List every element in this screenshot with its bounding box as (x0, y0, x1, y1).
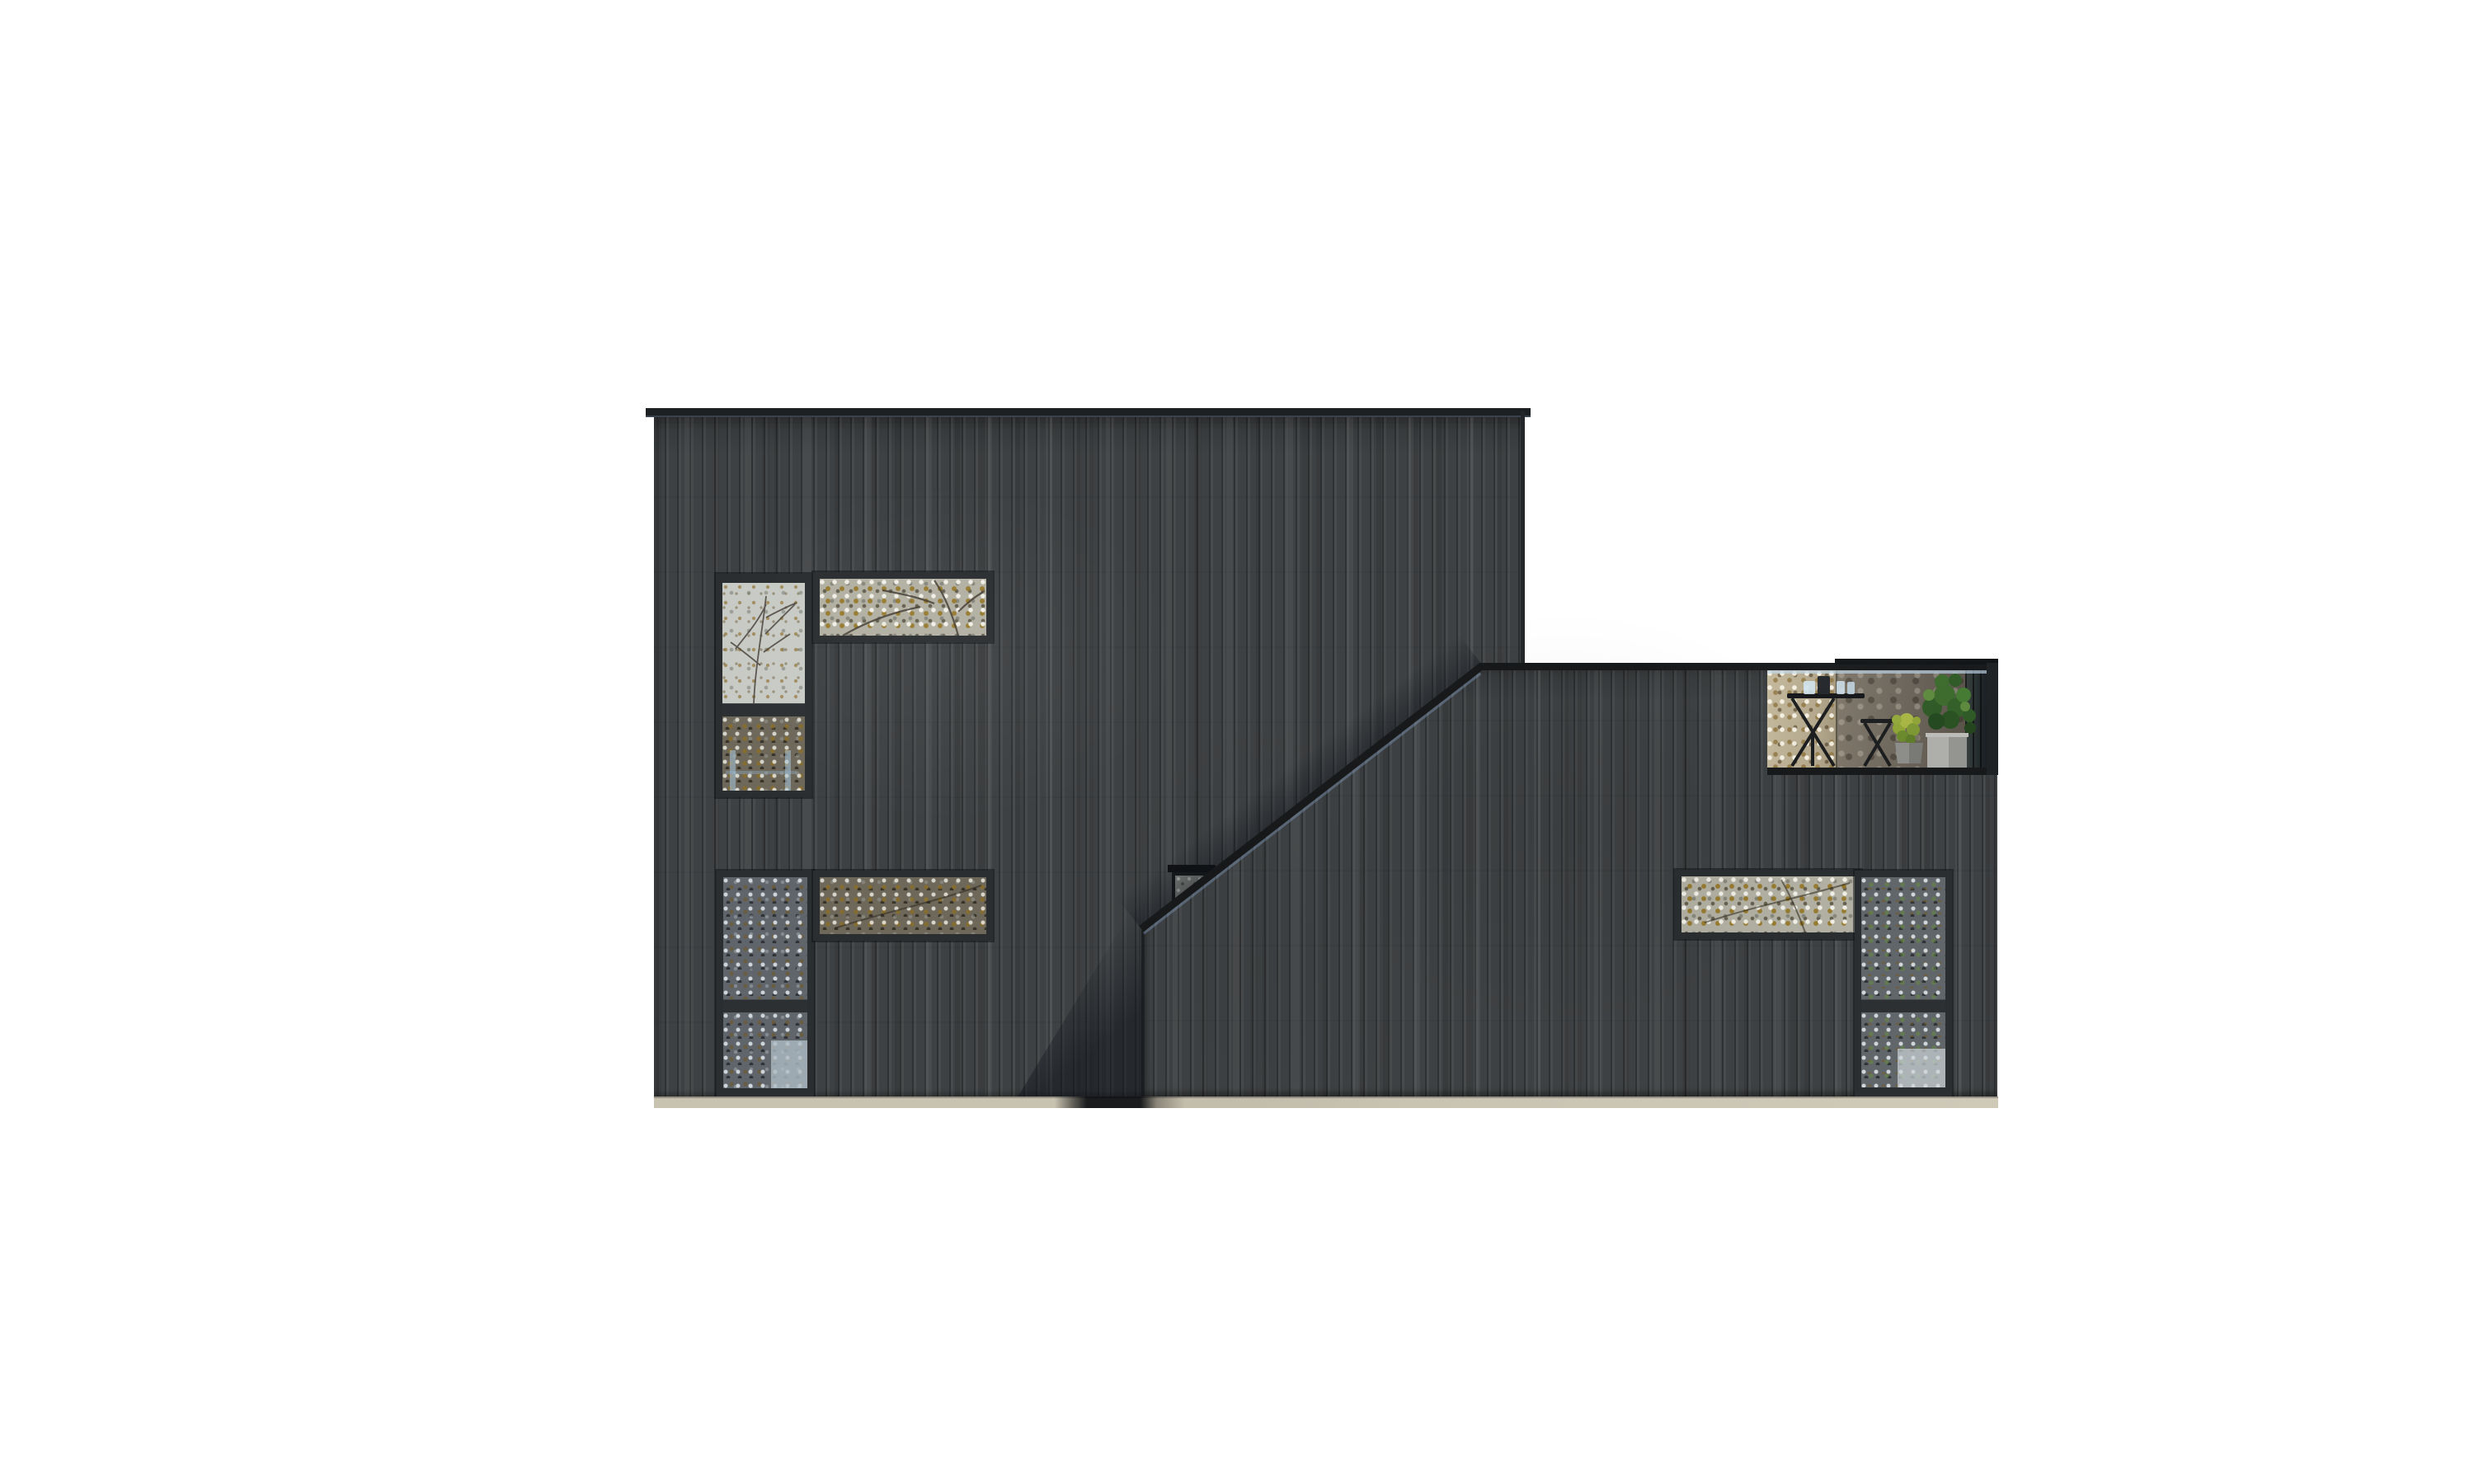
reflection-branches-icon (722, 583, 805, 703)
window-pane-foliage (1861, 1012, 1945, 1087)
window-lower-tall (717, 871, 814, 1098)
window-right-tall (1855, 871, 1952, 1097)
reflection-branches-icon (820, 877, 986, 934)
folding-stool-seat (1860, 719, 1895, 723)
window-pane-foliage (820, 579, 986, 636)
terrace-sill (1767, 768, 1997, 775)
window-pane-foliage (820, 877, 986, 934)
left-block-roof-cap (646, 408, 1531, 417)
terrace-glass-balustrade (1767, 670, 1997, 768)
table-glass (1837, 681, 1845, 694)
bright-reflection-patch (1898, 1049, 1945, 1087)
left-block-corner-trim (1521, 411, 1525, 666)
table-glass (1847, 682, 1855, 694)
window-pane-foliage (723, 1012, 807, 1088)
window-pane-foliage (723, 877, 807, 999)
reflection-branches-icon (1681, 876, 1855, 932)
window-pane-foliage (1681, 876, 1855, 932)
window-mullion (722, 703, 805, 716)
table-glass (1804, 681, 1815, 694)
right-block-corner-edge (1141, 930, 1145, 1097)
plant-pot-small-shade (1909, 743, 1923, 763)
window-mullion (1861, 999, 1945, 1012)
scene-canvas (0, 0, 2474, 1484)
ground-plinth (654, 1097, 1998, 1108)
window-upper-tall (716, 574, 811, 797)
plant-pot-large-shade (1949, 737, 1967, 768)
glass-top-highlight (1767, 670, 1997, 674)
potted-plant-large (1922, 674, 1976, 734)
terrace-furniture-and-plants (1767, 670, 1997, 768)
bistro-table (1792, 698, 1834, 766)
terrace-parapet-cap (1835, 659, 1998, 665)
potted-shrub-small (1892, 713, 1921, 744)
reflection-branches-icon (820, 579, 986, 636)
window-right-strip (1675, 870, 1861, 939)
plant-pot-large-lip (1926, 733, 1968, 737)
window-pane-sky (722, 583, 805, 703)
window-lower-strip (813, 871, 993, 941)
railing-reflection-bar (726, 771, 797, 774)
terrace-corner-post (1987, 663, 1998, 775)
window-mullion (723, 999, 807, 1012)
window-pane-foliage (722, 716, 805, 791)
window-pane-foliage (1861, 877, 1945, 999)
table-lantern (1818, 676, 1830, 694)
folding-stool (1865, 723, 1890, 766)
bright-reflection-patch (771, 1040, 807, 1088)
window-upper-strip (813, 572, 993, 642)
